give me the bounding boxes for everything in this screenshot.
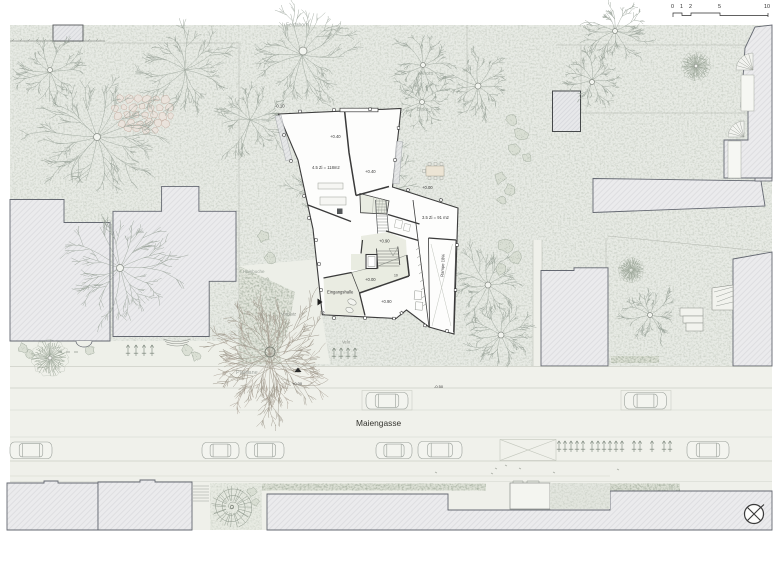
svg-text:-0.10: -0.10: [275, 104, 285, 109]
svg-text:16: 16: [321, 311, 325, 315]
svg-text:5: 5: [718, 4, 721, 10]
svg-text:10: 10: [394, 274, 398, 278]
svg-text:2: 2: [689, 4, 692, 10]
svg-text:Ahorn: Ahorn: [420, 71, 434, 77]
svg-text:+0.90: +0.90: [381, 299, 392, 304]
svg-text:4.5 Zi = 118m2: 4.5 Zi = 118m2: [312, 165, 340, 170]
svg-text:1: 1: [680, 4, 683, 10]
svg-text:Velo: Velo: [342, 340, 351, 345]
svg-text:Birke: Birke: [417, 107, 429, 113]
svg-text:3.5 Zi = 91 m2: 3.5 Zi = 91 m2: [422, 215, 450, 220]
svg-text:Feldahorn: Feldahorn: [286, 23, 309, 29]
svg-text:+0.00: +0.00: [365, 277, 376, 282]
svg-text:10: 10: [764, 4, 770, 10]
svg-text:Vorplatz: Vorplatz: [281, 312, 296, 317]
svg-text:0: 0: [671, 4, 674, 10]
svg-text:-0.50: -0.50: [434, 384, 444, 389]
svg-text:Eingangshalle: Eingangshalle: [327, 290, 354, 295]
svg-text:Hainbuche: Hainbuche: [243, 269, 265, 274]
svg-text:+0.90: +0.90: [379, 239, 390, 244]
svg-text:+0.00: +0.00: [292, 381, 303, 386]
svg-text:+0.40: +0.40: [365, 169, 376, 174]
svg-text:+0.40: +0.40: [330, 134, 341, 139]
svg-text:+0.00: +0.00: [422, 185, 433, 190]
svg-text:Plantane: Plantane: [236, 370, 258, 376]
svg-text:Maiengasse: Maiengasse: [356, 418, 402, 428]
